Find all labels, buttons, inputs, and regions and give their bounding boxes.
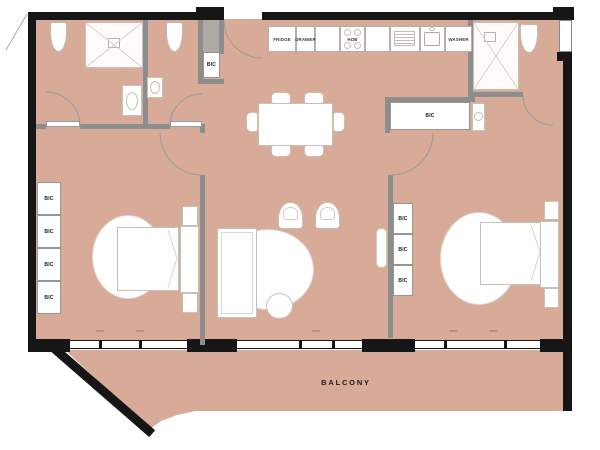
bed-mattress [480, 222, 541, 285]
window-mullion [504, 340, 507, 349]
dining-chair [333, 112, 345, 132]
shower-drain [484, 32, 496, 42]
window-mullion [444, 340, 447, 349]
bed-headboard [540, 221, 559, 288]
desk-inner [221, 232, 253, 314]
door-leaf [170, 121, 202, 127]
bic-cabinet: BIC [393, 265, 413, 296]
exterior-wall-top-right [262, 12, 558, 20]
exterior-wall-bottom-3 [362, 339, 415, 352]
kitchen-cabinet [315, 26, 340, 52]
kitchen-cabinet [365, 26, 390, 52]
kitchen-washer: WASHER [445, 26, 472, 52]
kitchen-hob-label: HOB [347, 37, 357, 42]
desk-chair [266, 293, 293, 319]
armchair-cushion [320, 207, 335, 220]
bic-closet: BIC [390, 102, 470, 130]
shaft-wall-bottom [198, 79, 224, 84]
door-leaf [46, 121, 80, 127]
exterior-wall-notch [553, 7, 574, 20]
bic-label: BIC [425, 113, 434, 119]
window [415, 340, 540, 349]
shower-tray [473, 22, 519, 90]
side-shelf [376, 228, 387, 268]
armchair-cushion [283, 207, 298, 220]
bic-cabinet: BIC [37, 215, 61, 248]
window-mullion [99, 340, 102, 349]
kitchen-fridge-label: FRIDGE [273, 37, 291, 42]
hob-burner [354, 42, 361, 49]
bic-cabinet: BIC [37, 182, 61, 215]
nightstand [182, 206, 198, 226]
window-mullion [139, 340, 142, 349]
partition-bathroom-south [80, 124, 170, 129]
shaft-wall-right [219, 20, 224, 54]
bic-label: BIC [44, 229, 53, 235]
exterior-wall-shaft-bump [196, 7, 224, 14]
sink-basin [126, 92, 138, 110]
kitchen-fridge: FRIDGE [268, 26, 296, 52]
dimension-mark [96, 330, 104, 332]
geyser-dial [474, 112, 483, 121]
bic-label: BIC [44, 196, 53, 202]
hob-burner [344, 29, 351, 36]
dining-table [258, 103, 333, 146]
bic-label: BIC [398, 247, 407, 253]
window-mullion [299, 340, 302, 349]
kitchen-washer-label: WASHER [448, 37, 468, 42]
exterior-wall-bottom-4 [540, 339, 563, 352]
bic-cabinet: BIC [37, 281, 61, 314]
hob-burner [344, 42, 351, 49]
bic-cabinet: BIC [37, 248, 61, 281]
duct-shaft [203, 20, 219, 52]
bic-cabinet: BIC [393, 203, 413, 234]
partition-bathroom2-south [473, 92, 523, 97]
dining-chair [246, 112, 258, 132]
bed-mattress [117, 227, 179, 291]
bed-headboard [180, 226, 199, 293]
entry-threshold [224, 10, 262, 19]
bic-label: BIC [207, 62, 216, 68]
exterior-wall-bottom-2 [187, 339, 237, 352]
kitchen-drawer-label: DRAWER [295, 37, 316, 42]
notch-window [559, 20, 572, 52]
bic-cabinet: BIC [393, 234, 413, 265]
window-mullion [332, 340, 335, 349]
exterior-wall-right [563, 52, 572, 411]
partition-bathroom-south-stub [36, 124, 46, 129]
dimension-mark [449, 330, 457, 332]
nightstand [182, 293, 198, 313]
partition-bathrooms-divider [143, 20, 148, 128]
exterior-wall-top-left [28, 12, 224, 20]
dining-chair [304, 145, 324, 157]
window [70, 340, 187, 349]
bic-label: BIC [398, 278, 407, 284]
bic-label: BIC [398, 216, 407, 222]
hob-burner [354, 29, 361, 36]
kitchen-drawer: DRAWER [296, 26, 315, 52]
balcony-label: BALCONY [300, 378, 392, 387]
dimension-mark [312, 330, 320, 332]
dish-rack-lines [394, 31, 415, 46]
balcony-label-text: BALCONY [321, 378, 371, 387]
sink-tap [429, 27, 435, 31]
partition-bedroom1 [200, 175, 205, 345]
sink-bowl [424, 32, 440, 46]
bic-label: BIC [44, 295, 53, 301]
exterior-wall-left [28, 12, 36, 352]
dining-chair [271, 145, 291, 157]
shower-drain [108, 38, 120, 48]
property-line [6, 14, 27, 50]
nightstand [544, 288, 559, 308]
dimension-mark [136, 330, 144, 332]
bic-label: BIC [44, 262, 53, 268]
sink-basin [150, 81, 160, 94]
floor-plan: FRIDGE DRAWER HOB WASHER BIC BIC BIC BIC… [0, 0, 600, 450]
dimension-mark [489, 330, 497, 332]
nightstand [544, 201, 559, 220]
bic-shaft-cabinet: BIC [203, 52, 220, 78]
